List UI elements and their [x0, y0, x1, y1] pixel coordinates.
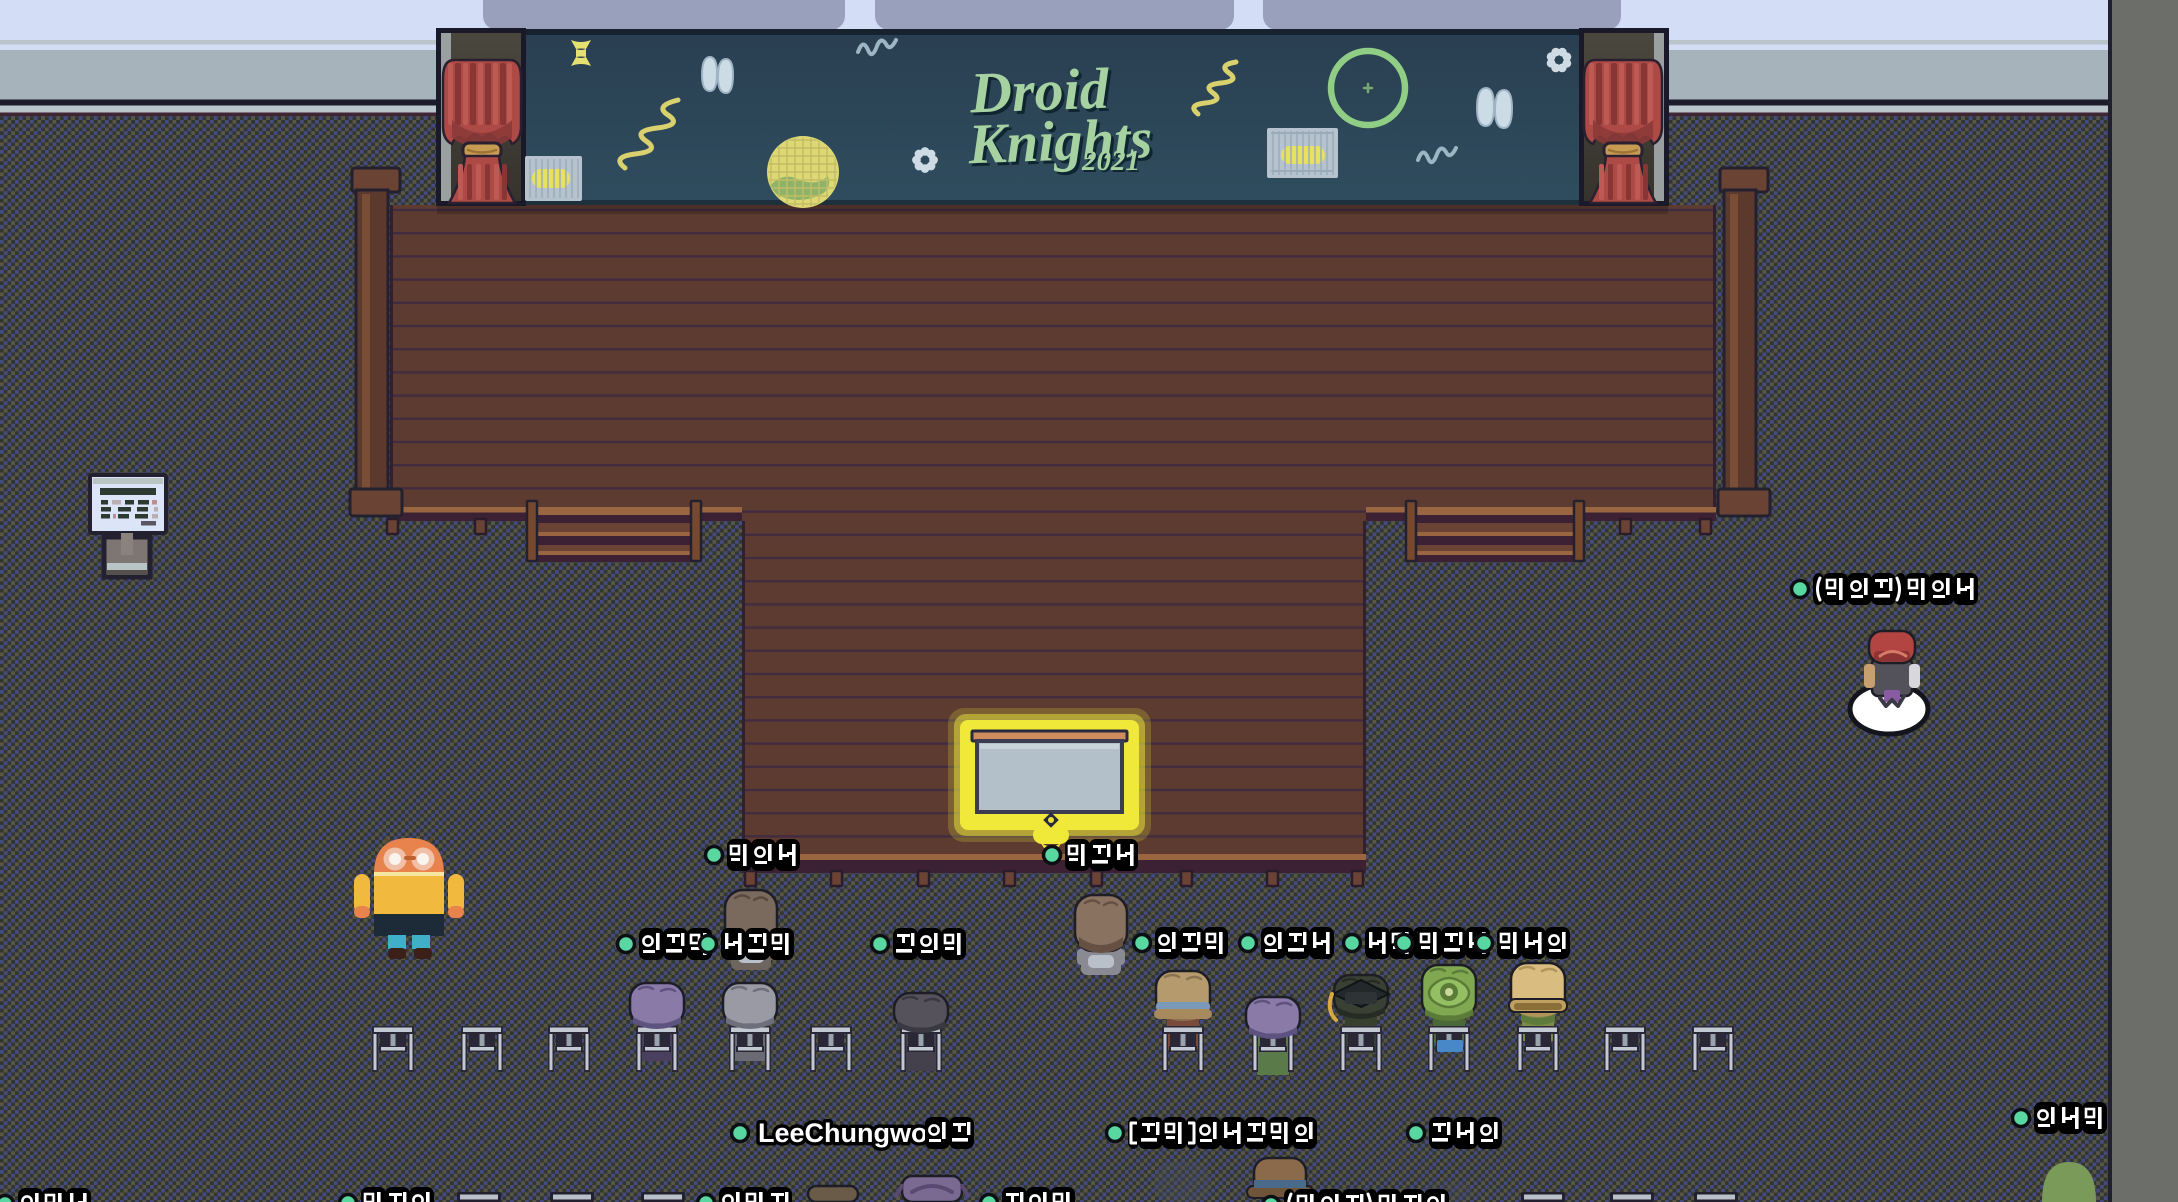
svg-text:LeeChungwoo: LeeChungwoo — [758, 1118, 944, 1148]
svg-text:2021: 2021 — [1081, 145, 1140, 177]
